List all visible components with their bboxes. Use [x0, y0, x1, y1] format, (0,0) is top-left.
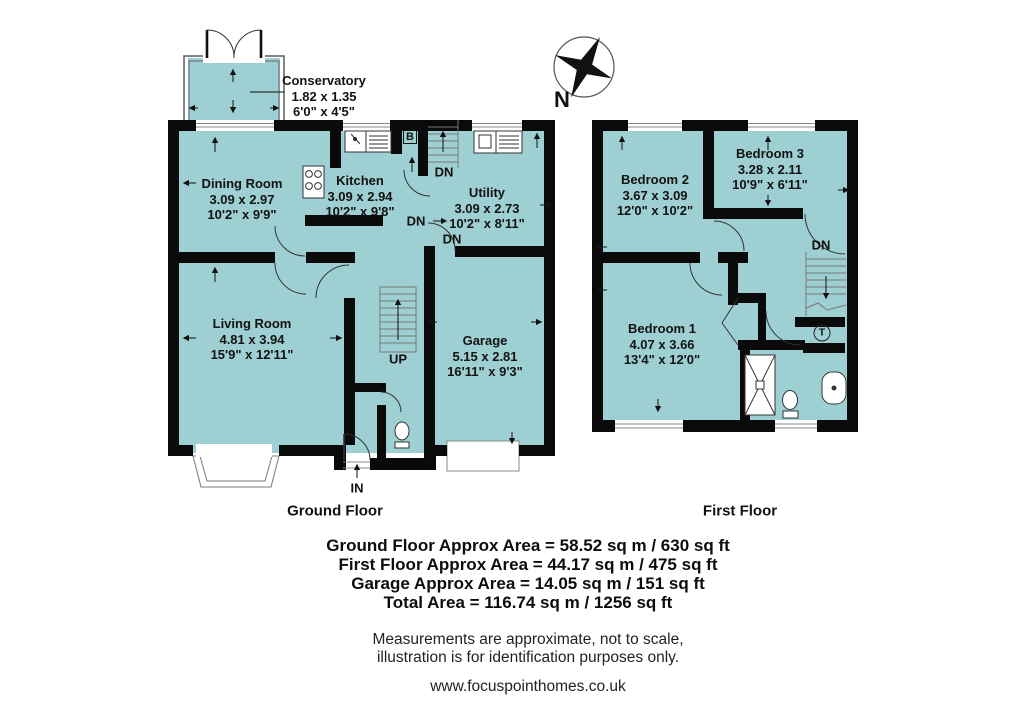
room-dims-metric: 3.28 x 2.11	[732, 161, 808, 177]
room-name: Dining Room	[202, 176, 283, 192]
ground-floor-title: Ground Floor	[287, 503, 383, 520]
bay-window	[193, 444, 279, 487]
room-name: Living Room	[211, 316, 294, 332]
room-dims-metric: 3.09 x 2.73	[449, 200, 525, 216]
toilet-icon	[783, 391, 799, 419]
floorplan-page: N Conservatory 1.82 x 1.35 6'0" x 4'5" D…	[0, 0, 1024, 723]
room-label-conservatory: Conservatory 1.82 x 1.35 6'0" x 4'5"	[282, 73, 366, 120]
first-floor-plan	[592, 120, 858, 432]
room-name: Garage	[447, 333, 523, 349]
room-dims-metric: 3.09 x 2.94	[325, 188, 394, 204]
kitchen-sink	[345, 131, 391, 152]
area-first: First Floor Approx Area = 44.17 sq m / 4…	[339, 555, 718, 575]
wc-toilet-icon	[395, 422, 409, 448]
room-label-bedroom1: Bedroom 1 4.07 x 3.66 13'4" x 12'0"	[624, 321, 700, 368]
room-dims-metric: 3.67 x 3.09	[617, 187, 693, 203]
room-dims-metric: 4.81 x 3.94	[211, 331, 294, 347]
room-label-bedroom2: Bedroom 2 3.67 x 3.09 12'0" x 10'2"	[617, 172, 693, 219]
stairs-dn-label-top: DN	[435, 165, 454, 180]
room-name: Bedroom 1	[624, 321, 700, 337]
stairs-up-label: UP	[389, 352, 407, 367]
room-label-kitchen: Kitchen 3.09 x 2.94 10'2" x 9'8"	[325, 173, 394, 220]
room-dims-imperial: 10'2" x 9'9"	[202, 207, 283, 223]
basin-icon	[822, 372, 846, 404]
room-name: Conservatory	[282, 73, 366, 89]
room-name: Kitchen	[325, 173, 394, 189]
shower-icon	[745, 355, 775, 415]
first-floor-title: First Floor	[703, 503, 777, 520]
disclaimer-line-1: Measurements are approximate, not to sca…	[372, 631, 683, 649]
stairs-dn-label-first: DN	[812, 238, 831, 253]
disclaimer-line-2: illustration is for identification purpo…	[377, 649, 679, 667]
room-dims-metric: 5.15 x 2.81	[447, 348, 523, 364]
stairs-dn-label-mid: DN	[407, 214, 426, 229]
garage-door	[447, 441, 519, 471]
entrance-in-label: IN	[351, 481, 364, 496]
room-name: Bedroom 3	[732, 146, 808, 162]
utility-sink	[474, 131, 522, 153]
room-dims-metric: 4.07 x 3.66	[624, 336, 700, 352]
room-label-garage: Garage 5.15 x 2.81 16'11" x 9'3"	[447, 333, 523, 380]
first-floor-fill	[597, 125, 853, 425]
room-dims-imperial: 10'9" x 6'11"	[732, 177, 808, 193]
stairs-dn-label-low: DN	[443, 232, 462, 247]
room-name: Bedroom 2	[617, 172, 693, 188]
compass-north-label: N	[554, 87, 570, 113]
area-garage: Garage Approx Area = 14.05 sq m / 151 sq…	[351, 574, 705, 594]
room-dims-imperial: 15'9" x 12'11"	[211, 347, 294, 363]
room-dims-imperial: 6'0" x 4'5"	[282, 104, 366, 120]
room-dims-imperial: 16'11" x 9'3"	[447, 364, 523, 380]
room-dims-imperial: 10'2" x 8'11"	[449, 216, 525, 232]
area-total: Total Area = 116.74 sq m / 1256 sq ft	[384, 593, 673, 613]
room-dims-imperial: 12'0" x 10'2"	[617, 203, 693, 219]
website-url: www.focuspointhomes.co.uk	[430, 678, 626, 696]
room-label-utility: Utility 3.09 x 2.73 10'2" x 8'11"	[449, 185, 525, 232]
area-ground: Ground Floor Approx Area = 58.52 sq m / …	[326, 536, 730, 556]
tank-label: T	[814, 325, 831, 342]
boiler-label: B	[403, 130, 417, 144]
room-label-bedroom3: Bedroom 3 3.28 x 2.11 10'9" x 6'11"	[732, 146, 808, 193]
room-dims-metric: 1.82 x 1.35	[282, 88, 366, 104]
stove-icon	[303, 166, 324, 198]
room-name: Utility	[449, 185, 525, 201]
room-dims-imperial: 13'4" x 12'0"	[624, 352, 700, 368]
room-label-living: Living Room 4.81 x 3.94 15'9" x 12'11"	[211, 316, 294, 363]
room-dims-imperial: 10'2" x 9'8"	[325, 204, 394, 220]
room-dims-metric: 3.09 x 2.97	[202, 191, 283, 207]
room-label-dining: Dining Room 3.09 x 2.97 10'2" x 9'9"	[202, 176, 283, 223]
